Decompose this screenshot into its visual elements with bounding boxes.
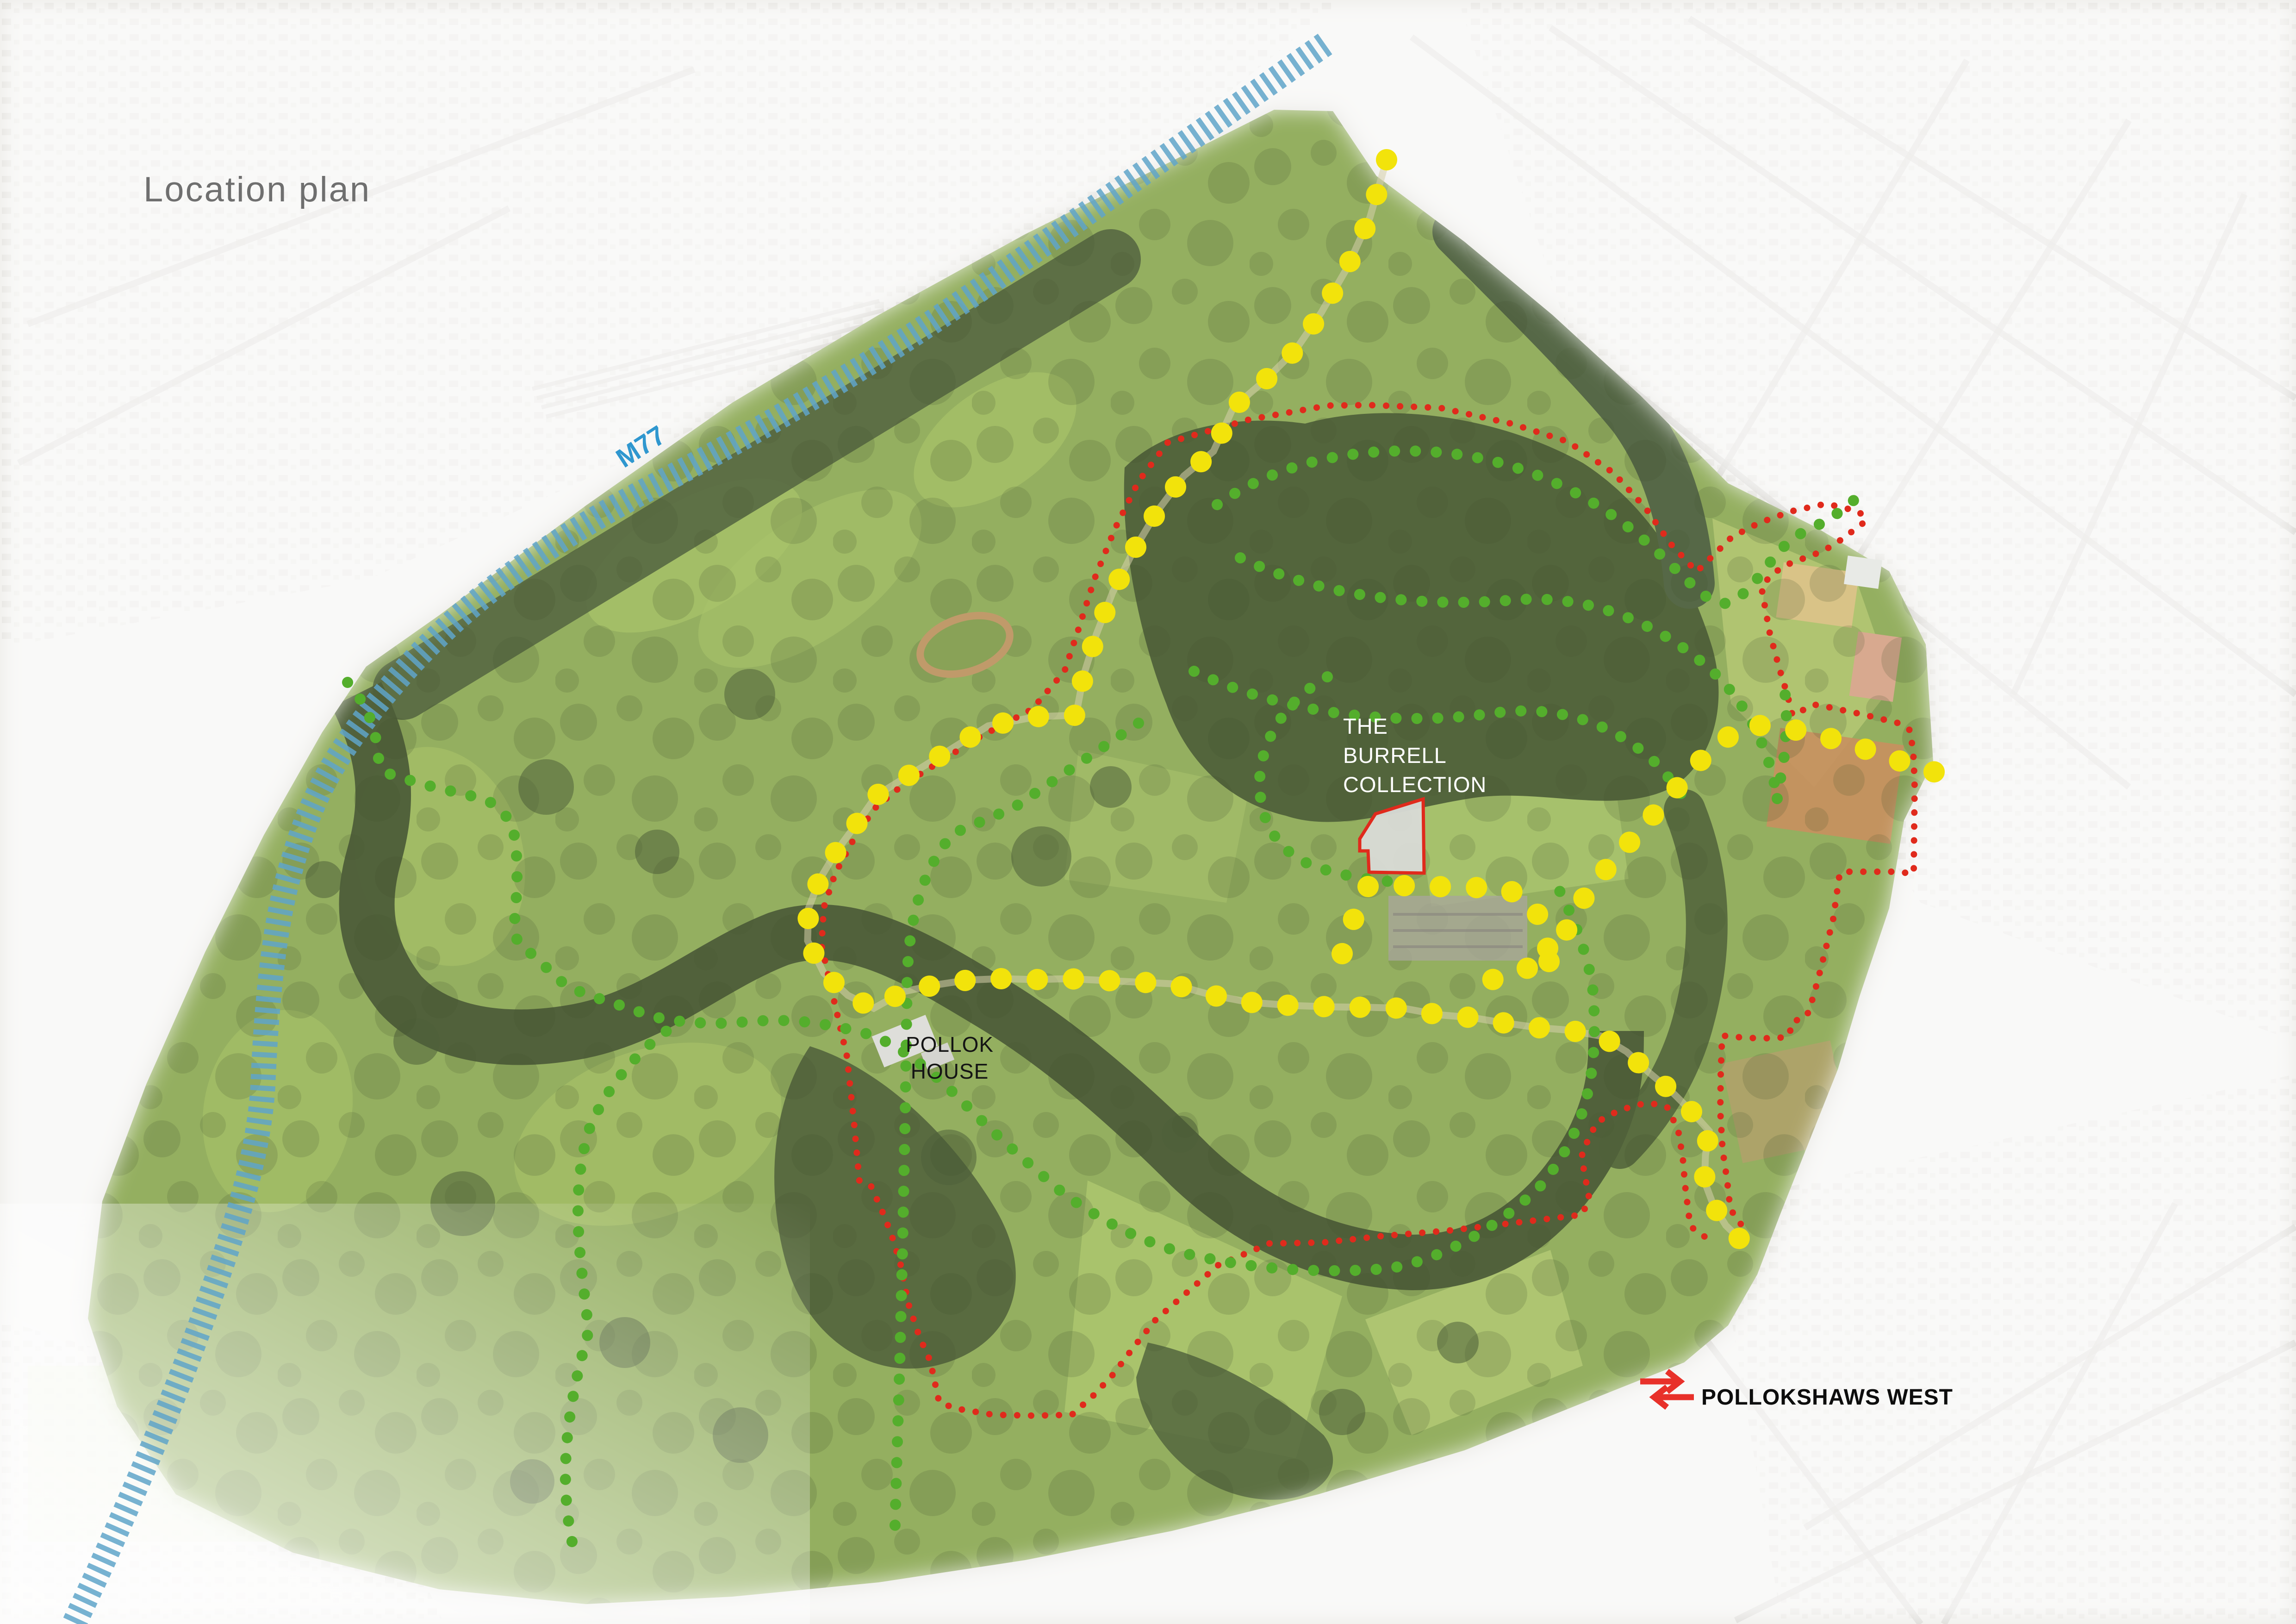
- burrell-label-line2: BURRELL: [1343, 743, 1447, 768]
- location-plan-page: M77 THE BURRELL COLLECTION POLLOK HOUSE …: [0, 0, 2296, 1624]
- pollokshaws-west-label: POLLOKSHAWS WEST: [1701, 1385, 1953, 1410]
- pollok-house-label-line1: POLLOK: [906, 1032, 994, 1056]
- page-title: Location plan: [143, 170, 371, 209]
- warehouse-building: [1844, 556, 1882, 589]
- pollok-house-label-line2: HOUSE: [911, 1059, 989, 1083]
- sw-fade: [0, 1204, 810, 1624]
- car-park: [1388, 896, 1527, 961]
- burrell-label-line3: COLLECTION: [1343, 772, 1487, 797]
- burrell-label-line1: THE: [1343, 714, 1388, 738]
